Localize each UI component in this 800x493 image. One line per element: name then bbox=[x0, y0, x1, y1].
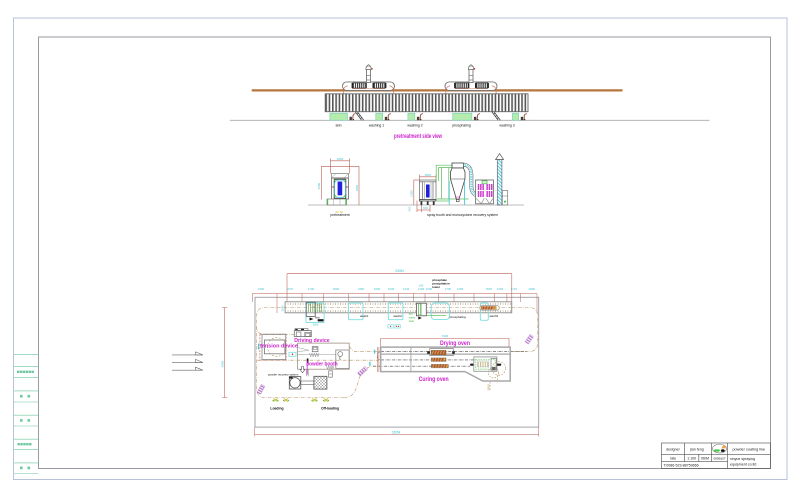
svg-text:tank: tank bbox=[409, 319, 415, 323]
svg-text:1000: 1000 bbox=[374, 287, 381, 291]
svg-text:washing 3: washing 3 bbox=[499, 124, 514, 128]
svg-text:Off-loading: Off-loading bbox=[321, 407, 339, 411]
svg-text:powder booth: powder booth bbox=[306, 361, 338, 367]
svg-text:2450: 2450 bbox=[358, 287, 365, 291]
svg-text:3000: 3000 bbox=[313, 322, 319, 326]
svg-text:24054: 24054 bbox=[395, 269, 404, 273]
svg-text:2270: 2270 bbox=[287, 287, 294, 291]
svg-text:1050: 1050 bbox=[337, 157, 344, 161]
svg-text:1:100: 1:100 bbox=[687, 457, 696, 461]
svg-text:0805&07: 0805&07 bbox=[713, 457, 725, 461]
svg-text:3000: 3000 bbox=[333, 287, 340, 291]
svg-text:3850: 3850 bbox=[355, 184, 359, 191]
svg-text:tension device: tension device bbox=[260, 344, 298, 350]
svg-text:6980: 6980 bbox=[221, 360, 225, 367]
svg-text:wash2: wash2 bbox=[393, 314, 402, 318]
svg-text:washing 1: washing 1 bbox=[369, 124, 384, 128]
svg-text:1500: 1500 bbox=[486, 287, 493, 291]
svg-text:2298: 2298 bbox=[528, 287, 535, 291]
svg-text:wash1: wash1 bbox=[360, 314, 369, 318]
svg-text:jian feng: jian feng bbox=[689, 447, 704, 451]
svg-text:powder coating line: powder coating line bbox=[732, 447, 765, 451]
svg-text:powder recovery system: powder recovery system bbox=[268, 372, 299, 376]
svg-text:Curing oven: Curing oven bbox=[419, 377, 449, 383]
svg-text:2350: 2350 bbox=[409, 190, 413, 197]
svg-text:Driving device: Driving device bbox=[294, 338, 329, 344]
svg-text:spray booth and monocyclone re: spray booth and monocyclone recovery sys… bbox=[427, 213, 498, 217]
svg-text:450: 450 bbox=[408, 206, 412, 211]
svg-text:wash3: wash3 bbox=[489, 314, 498, 318]
svg-text:hot: hot bbox=[409, 312, 413, 316]
svg-text:1500: 1500 bbox=[258, 287, 265, 291]
svg-text:pretreatment: pretreatment bbox=[330, 213, 349, 217]
svg-text:1700: 1700 bbox=[445, 287, 452, 291]
svg-text:2500: 2500 bbox=[317, 182, 321, 189]
svg-text:1000: 1000 bbox=[388, 287, 395, 291]
svg-text:phosphating: phosphating bbox=[452, 124, 471, 128]
svg-text:xinyue spraying: xinyue spraying bbox=[730, 457, 755, 461]
svg-text:water: water bbox=[409, 315, 416, 319]
svg-text:06/M: 06/M bbox=[701, 457, 709, 461]
svg-text:1293: 1293 bbox=[497, 287, 504, 291]
svg-text:designer: designer bbox=[666, 447, 681, 451]
svg-text:1500: 1500 bbox=[424, 173, 431, 177]
svg-text:phosphating: phosphating bbox=[450, 315, 467, 319]
svg-text:Loading: Loading bbox=[270, 407, 283, 411]
svg-text:1719: 1719 bbox=[511, 287, 518, 291]
svg-text:1283: 1283 bbox=[457, 287, 464, 291]
svg-text:equipment co.ltd: equipment co.ltd bbox=[730, 462, 756, 466]
svg-text:skin: skin bbox=[315, 315, 320, 319]
svg-text:140: 140 bbox=[419, 284, 424, 288]
svg-text:1500: 1500 bbox=[280, 305, 284, 311]
svg-text:1443: 1443 bbox=[403, 287, 410, 291]
svg-text:skin: skin bbox=[335, 124, 341, 128]
svg-text:550: 550 bbox=[455, 196, 460, 200]
svg-text:pretreatment side view: pretreatment side view bbox=[394, 134, 442, 140]
svg-text:23054: 23054 bbox=[392, 430, 401, 434]
svg-text:3008: 3008 bbox=[486, 384, 490, 391]
svg-text:Drying oven: Drying oven bbox=[440, 341, 470, 347]
svg-text:T:0086-523-88759666: T:0086-523-88759666 bbox=[664, 464, 699, 468]
svg-text:tower: tower bbox=[432, 285, 441, 289]
svg-text:washing 2: washing 2 bbox=[407, 124, 422, 128]
svg-text:7300: 7300 bbox=[441, 334, 448, 338]
svg-text:rate: rate bbox=[670, 457, 676, 461]
svg-text:600: 600 bbox=[423, 206, 428, 210]
svg-text:1700: 1700 bbox=[308, 287, 315, 291]
